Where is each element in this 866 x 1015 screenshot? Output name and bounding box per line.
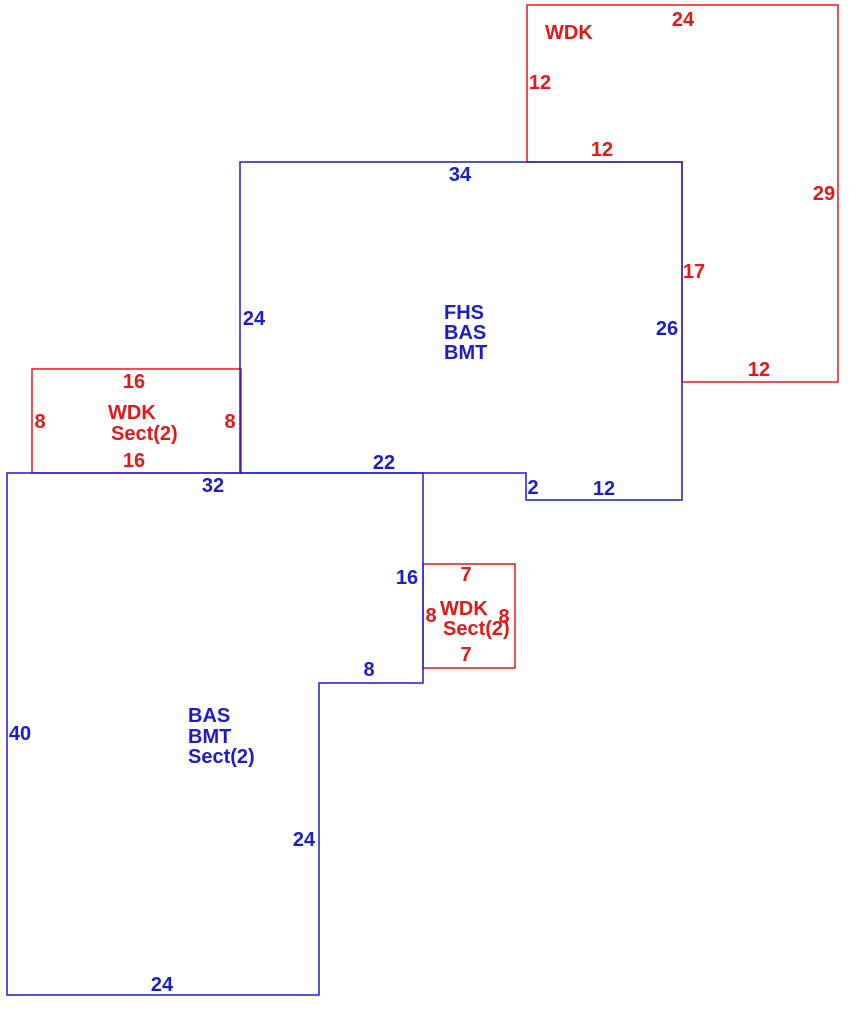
dimension-label: 12 bbox=[593, 478, 615, 500]
property-sketch: 24WDK121229171216WDKSect(2)881678WDKSect… bbox=[0, 0, 866, 1015]
dimension-label: 34 bbox=[449, 164, 472, 186]
dimension-label: 40 bbox=[9, 723, 31, 745]
dimension-label: 29 bbox=[813, 183, 835, 205]
dimension-label: 8 bbox=[363, 659, 374, 681]
dimension-label: 22 bbox=[373, 452, 395, 474]
dimension-label: 16 bbox=[396, 567, 418, 589]
dimension-label: 26 bbox=[656, 318, 678, 340]
dimension-label: 24 bbox=[151, 974, 174, 996]
area-code-label: WDK bbox=[440, 598, 488, 620]
dimension-label: 8 bbox=[224, 411, 235, 433]
dimension-label: 24 bbox=[293, 829, 316, 851]
sketch-shapes-layer bbox=[7, 5, 838, 995]
area-code-label: WDK bbox=[108, 402, 156, 424]
sketch-labels-layer: 24WDK121229171216WDKSect(2)881678WDKSect… bbox=[9, 9, 835, 996]
dimension-label: 24 bbox=[243, 308, 266, 330]
dimension-label: 7 bbox=[460, 564, 471, 586]
area-code-label: BAS bbox=[188, 705, 230, 727]
area-code-label: BMT bbox=[444, 342, 487, 364]
dimension-label: 8 bbox=[425, 605, 436, 627]
area-code-label: BMT bbox=[188, 726, 231, 748]
area-code-label: Sect(2) bbox=[188, 746, 255, 768]
area-code-label: BAS bbox=[444, 322, 486, 344]
dimension-label: 7 bbox=[460, 644, 471, 666]
dimension-label: 2 bbox=[527, 477, 538, 499]
dimension-label: 16 bbox=[123, 371, 145, 393]
dimension-label: 12 bbox=[748, 359, 770, 381]
area-code-label: WDK bbox=[545, 22, 593, 44]
dimension-label: 12 bbox=[591, 139, 613, 161]
dimension-label: 8 bbox=[34, 411, 45, 433]
dimension-label: 16 bbox=[123, 450, 145, 472]
dimension-label: 12 bbox=[529, 72, 551, 94]
dimension-label: 8 bbox=[498, 606, 509, 628]
dimension-label: 17 bbox=[683, 261, 705, 283]
area-code-label: FHS bbox=[444, 302, 484, 324]
dimension-label: 32 bbox=[202, 475, 224, 497]
sketch-page: 24WDK121229171216WDKSect(2)881678WDKSect… bbox=[0, 0, 866, 1015]
area-code-label: Sect(2) bbox=[111, 423, 178, 445]
dimension-label: 24 bbox=[672, 9, 695, 31]
